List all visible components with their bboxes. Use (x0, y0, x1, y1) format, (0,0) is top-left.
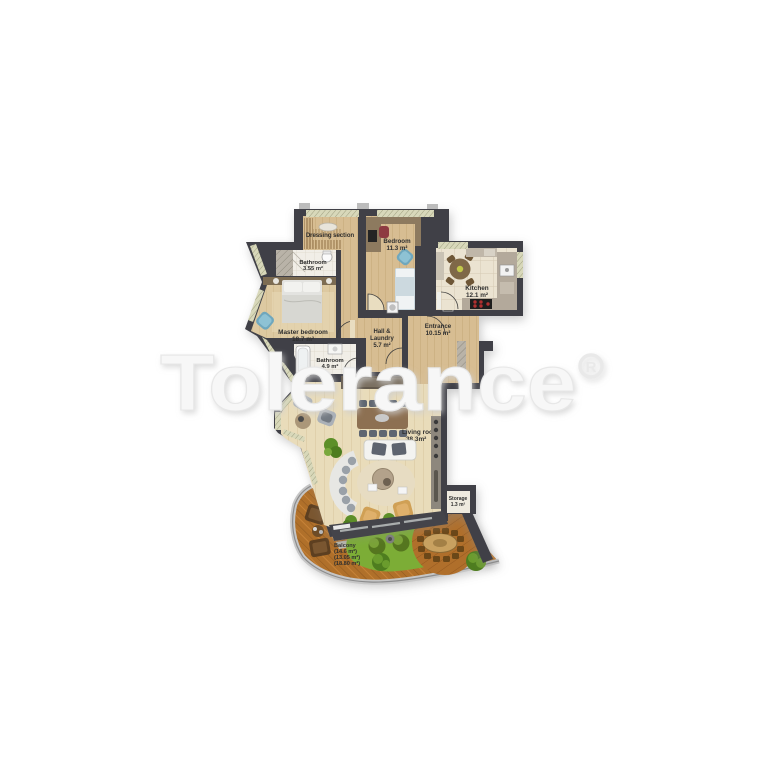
svg-text:12.1 m²: 12.1 m² (466, 292, 488, 299)
svg-text:Bedroom: Bedroom (383, 238, 411, 245)
svg-text:(18.80 m²): (18.80 m²) (334, 560, 360, 567)
svg-text:Master bedroom: Master bedroom (278, 329, 328, 336)
svg-text:Dressing section: Dressing section (306, 233, 355, 239)
svg-text:11.3 m²: 11.3 m² (387, 245, 408, 252)
svg-text:Entrance: Entrance (425, 323, 452, 330)
svg-text:(13.05 m²): (13.05 m²) (334, 554, 360, 561)
svg-text:1.3 m²: 1.3 m² (451, 502, 466, 508)
svg-text:10.15 m²: 10.15 m² (426, 330, 451, 337)
svg-text:Kitchen: Kitchen (465, 285, 489, 292)
svg-text:Hall &: Hall & (373, 329, 391, 335)
svg-text:(14.6 m²): (14.6 m²) (334, 548, 357, 555)
svg-text:R: R (586, 359, 597, 376)
svg-text:Tolerance: Tolerance (160, 337, 577, 426)
svg-text:3.55 m²: 3.55 m² (303, 265, 323, 272)
